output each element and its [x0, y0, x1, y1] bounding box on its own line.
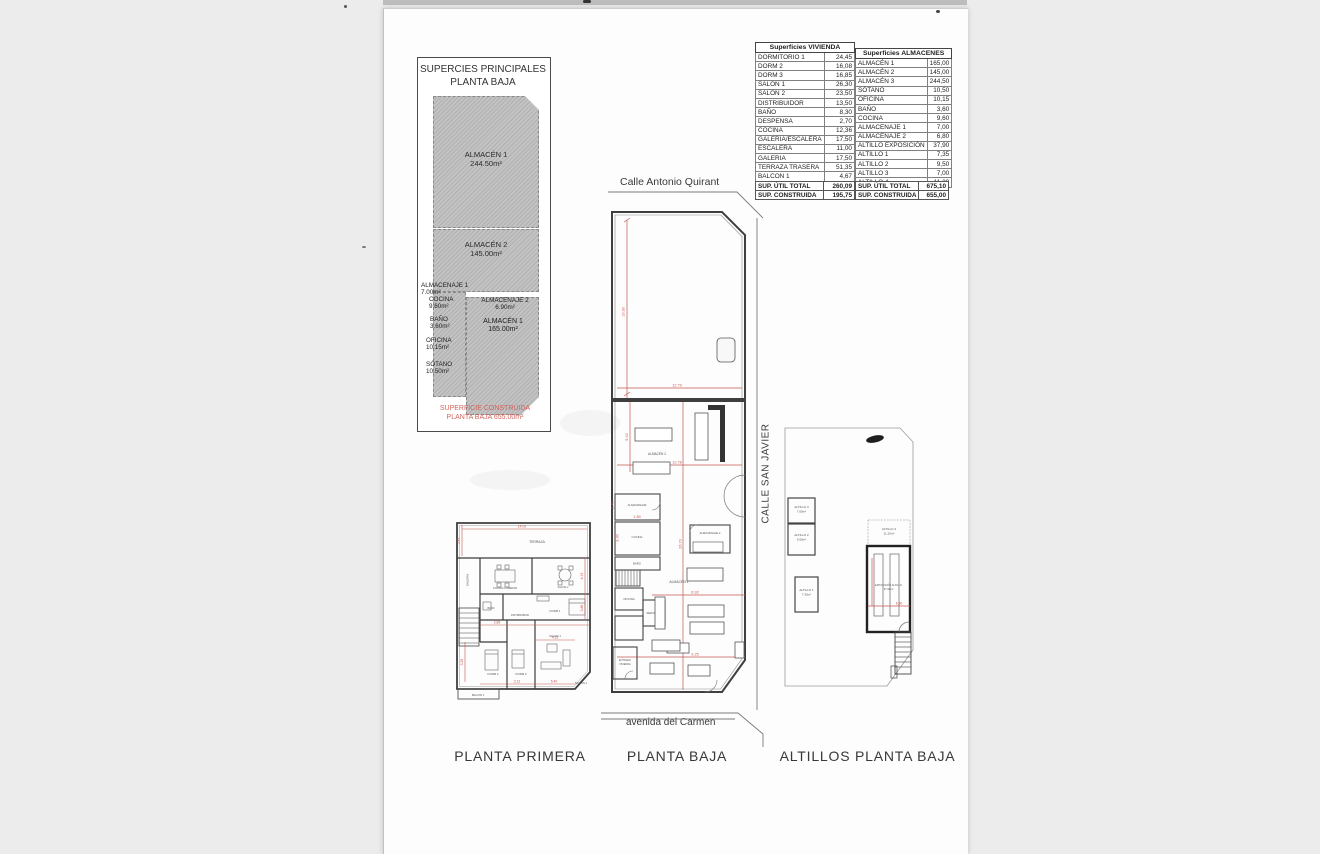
row-value: 37,90	[927, 141, 952, 150]
scan-artifact	[344, 5, 347, 8]
row-value: 3,60	[927, 104, 952, 113]
summary-footer: SUPERFICIE CONSTRUIDA PLANTA BAJA 655.00…	[428, 404, 542, 423]
row-value: 675,10	[919, 182, 949, 191]
area-label: SÓTANO 10.50m²	[426, 361, 452, 375]
dim-label: 4.19	[580, 573, 584, 580]
dim-label: 3.12	[514, 680, 521, 684]
stairs	[616, 570, 640, 586]
table-row: SALON 223,50	[756, 89, 855, 98]
row-value: 2,70	[824, 117, 854, 126]
room-label-almacen2: ALMACÉN 2	[648, 451, 666, 456]
area-value: 7.35m²	[802, 593, 811, 597]
row-value: 6,80	[927, 132, 952, 141]
floor-plan-altillos: 6.30 ALTILLO 3 7.00m² ALTILLO 2 9.50m² A…	[775, 418, 945, 718]
area-value: 9.50m²	[797, 538, 806, 542]
area-name: ALTILLO 4	[882, 527, 897, 531]
area-value: 244.50m²	[433, 159, 539, 168]
row-value: 16,85	[824, 71, 854, 80]
dim-label: 2.40	[611, 501, 615, 508]
furniture	[483, 565, 585, 670]
table-row: SALON 126,30	[756, 80, 855, 89]
table-row: BAÑO8,30	[756, 108, 855, 117]
row-label: BAÑO	[856, 104, 928, 113]
dim-label: 2.89	[494, 621, 501, 625]
row-label: ALTILLO 3	[856, 169, 928, 178]
table-row: ALTILLO EXPOSICIÓN37,90	[856, 141, 952, 150]
row-label: ALTILLO EXPOSICIÓN	[856, 141, 928, 150]
dimension-labels: 19.30 12.79 12.78 9.42 26.70 6.92 9.25 1…	[611, 307, 699, 656]
area-value: 10.50m²	[426, 368, 452, 375]
area-label: OFICINA 10.15m²	[426, 337, 452, 351]
area-name: ALMACÉN 1	[470, 318, 536, 326]
row-value: 9,50	[927, 160, 952, 169]
area-label: ALMACÉN 1 165.00m²	[470, 318, 536, 334]
area-label: COCINA 9.60m²	[429, 296, 454, 310]
altillo-labels: ALTILLO 3 7.00m² ALTILLO 2 9.50m² ALTILL…	[794, 505, 902, 597]
table-row: ALTILLO 37,00	[856, 169, 952, 178]
dim-label: 6.30	[896, 602, 903, 606]
scan-edge-strip	[383, 0, 967, 5]
building-outline	[612, 212, 745, 692]
area-name: BAÑO	[430, 316, 450, 323]
table-row: SUP. ÚTIL TOTAL675,10	[856, 182, 949, 191]
table-row: ALTILLO 17,35	[856, 150, 952, 159]
interior-wall	[720, 405, 725, 462]
table-row: SUP. CONSTRUIDA655,00	[856, 191, 949, 200]
room-label-dorm1: DORM 1	[550, 609, 561, 613]
interior-wall	[612, 398, 745, 402]
table-title: Superficies VIVIENDA	[756, 43, 855, 53]
table-row: GALERIA/ESCALERA17,50	[756, 135, 855, 144]
row-label: ALMACENAJE 2	[856, 132, 928, 141]
row-label: ALTILLO 1	[856, 150, 928, 159]
dim-label: 3.29	[460, 659, 464, 666]
row-value: 244,50	[927, 77, 952, 86]
summary-footer-line2: PLANTA BAJA 655.00m²	[428, 413, 542, 422]
scan-artifact	[583, 0, 591, 3]
scan-artifact	[865, 434, 884, 445]
room-label-terraza: TERRAZA	[529, 540, 546, 544]
area-label: ALMACÉN 2 145.00m²	[433, 240, 539, 259]
plan-title-altillos: ALTILLOS PLANTA BAJA	[770, 748, 965, 764]
area-label: ALMACENAJE 2 6.90m²	[477, 297, 533, 311]
row-label: SALON 1	[756, 80, 825, 89]
row-value: 10,15	[927, 95, 952, 104]
summary-footer-line1: SUPERFICIE CONSTRUIDA	[428, 404, 542, 413]
summary-title-line2: PLANTA BAJA	[419, 76, 547, 89]
shelving	[650, 568, 744, 676]
room-label-galeria: GALERIA	[466, 574, 470, 586]
table-row: SÓTANO10,50	[856, 86, 952, 95]
row-value: 16,08	[824, 62, 854, 71]
row-value: 26,30	[824, 80, 854, 89]
dim-label: 9.25	[691, 653, 698, 657]
dim-label: 12.78	[672, 461, 682, 465]
room-label-balcon1: BALCON 1	[472, 694, 485, 697]
row-value: 7,00	[927, 123, 952, 132]
dim-label: 5.40	[551, 680, 558, 684]
row-label: GALERIA	[756, 154, 825, 163]
row-label: DORM 2	[756, 62, 825, 71]
room-label-almacenaje2: ALMACENAJE 2	[700, 531, 721, 535]
area-value: 10.15m²	[426, 344, 452, 351]
dim-label: 12.79	[672, 384, 682, 388]
room-labels: TERRAZA GALERIA COCINA COMEDOR SALON 2 D…	[466, 540, 588, 697]
scanned-plan-sheet: SUPERCIES PRINCIPALES PLANTA BAJA ALMACÉ…	[0, 0, 1320, 854]
row-label: ALMACÉN 2	[856, 68, 928, 77]
room-label-dorm2: DORM 2	[488, 672, 499, 676]
room-label-almacen1: ALMACÉN 1	[669, 579, 688, 584]
floor-plan-planta-primera: 14.02 3.43 4.51 2.89 3.88 4.19 3.12 5.40…	[437, 512, 617, 712]
table-title: Superficies ALMACENES	[856, 49, 952, 59]
row-label: BAÑO	[756, 108, 825, 117]
area-value: 165.00m²	[470, 326, 536, 334]
scan-artifact	[936, 10, 940, 13]
room-label-distribuidor: DISTRIBUIDOR	[511, 614, 529, 617]
plan-title-planta-baja: PLANTA BAJA	[592, 748, 762, 764]
shelving	[693, 542, 723, 552]
summary-title-line1: SUPERCIES PRINCIPALES	[419, 63, 547, 76]
row-value: 7,35	[927, 150, 952, 159]
room-label-entrada: VIVIENDA	[619, 663, 631, 666]
room-label-bano: BAÑO	[633, 561, 642, 566]
row-value: 17,50	[824, 154, 854, 163]
area-name: ALTILLO 2	[794, 533, 809, 537]
row-value: 655,00	[919, 191, 949, 200]
fixture	[717, 338, 735, 362]
table-superficies-almacenes: Superficies ALMACENES ALMACÉN 1165,00ALM…	[855, 48, 952, 188]
row-value: 4,67	[824, 172, 854, 181]
area-name: ALMACÉN 1	[433, 150, 539, 159]
row-label: DESPENSA	[756, 117, 825, 126]
area-name: EXPOSICIÓN ALTILLO	[875, 582, 902, 587]
row-label: OFICINA	[856, 95, 928, 104]
row-value: 9,60	[927, 114, 952, 123]
area-name: COCINA	[429, 296, 454, 303]
area-label: BAÑO 3.60m²	[430, 316, 450, 330]
dim-label: 1.80	[633, 515, 640, 519]
table-row: ALMACÉN 1165,00	[856, 59, 952, 68]
area-label: ALMACÉN 1 244.50m²	[433, 150, 539, 169]
stairs	[459, 608, 479, 646]
room-label-salon1: SALON 1	[549, 634, 561, 638]
dim-label: 14.02	[518, 525, 527, 529]
room-label-balcon2: BALCON 2	[575, 682, 587, 685]
area-name: ALTILLO 3	[794, 505, 809, 509]
table-row: ALMACÉN 2145,00	[856, 68, 952, 77]
table-superficies-vivienda: Superficies VIVIENDA DORMITORIO 124,45DO…	[755, 42, 855, 191]
area-name: OFICINA	[426, 337, 452, 344]
area-label: ALMACENAJE 1 7.00m²	[421, 282, 468, 296]
row-value: 17,50	[824, 135, 854, 144]
dim-label: 3.43	[457, 538, 461, 545]
row-label: DISTRIBUIDOR	[756, 98, 825, 107]
room-label-oficina: OFICINA	[623, 597, 634, 601]
area-name: SÓTANO	[426, 361, 452, 368]
area-value: 145.00m²	[433, 249, 539, 258]
area-value: 3.60m²	[430, 323, 450, 330]
area-value: 37.90m²	[884, 587, 894, 591]
table-row: DISTRIBUIDOR13,50	[756, 98, 855, 107]
row-value: 165,00	[927, 59, 952, 68]
row-label: ALMACÉN 3	[856, 77, 928, 86]
row-label: TERRAZA TRASERA	[756, 163, 825, 172]
room-label-cocina: COCINA	[632, 535, 643, 539]
row-value: 195,75	[824, 191, 855, 200]
row-value: 23,50	[824, 89, 854, 98]
area-value: 11.20m²	[884, 532, 895, 536]
plan-title-planta-primera: PLANTA PRIMERA	[430, 748, 610, 764]
table-row: GALERIA17,50	[756, 154, 855, 163]
dim-label: 19.30	[622, 307, 626, 317]
hatched-area-almacen1-165	[466, 297, 539, 415]
floor-plan-planta-baja: 19.30 12.79 12.78 9.42 26.70 6.92 9.25 1…	[597, 172, 782, 747]
table-row: OFICINA10,15	[856, 95, 952, 104]
area-name: ALMACÉN 2	[433, 240, 539, 249]
table-almacenes-totals: SUP. ÚTIL TOTAL675,10SUP. CONSTRUIDA655,…	[855, 181, 949, 200]
table-row: ALMACÉN 3244,50	[856, 77, 952, 86]
table-row: DORM 316,85	[756, 71, 855, 80]
table-row: ESCALERA11,00	[756, 144, 855, 153]
scan-artifact	[362, 246, 366, 248]
area-name: ALTILLO 1	[799, 588, 814, 592]
row-value: 8,30	[824, 108, 854, 117]
row-value: 260,09	[824, 182, 855, 191]
area-value: 9.60m²	[429, 303, 454, 310]
table-row: COCINA9,60	[856, 114, 952, 123]
row-value: 10,50	[927, 86, 952, 95]
row-value: 11,00	[824, 144, 854, 153]
summary-box-title: SUPERCIES PRINCIPALES PLANTA BAJA	[419, 63, 547, 89]
dim-label: 9.42	[625, 433, 629, 440]
table-row: ALTILLO 29,50	[856, 160, 952, 169]
area-value: 7.00m²	[797, 510, 806, 514]
table-row: DORMITORIO 124,45	[756, 53, 855, 62]
room-label-almacenaje: ALMACENAJE	[628, 503, 647, 507]
room-label-bano: BAÑO	[487, 607, 494, 610]
dim-label: 26.70	[679, 539, 683, 549]
stairs	[891, 632, 911, 678]
table-row: DORM 216,08	[756, 62, 855, 71]
row-value: 145,00	[927, 68, 952, 77]
row-value: 12,36	[824, 126, 854, 135]
row-label: DORM 3	[756, 71, 825, 80]
row-label: SUP. CONSTRUIDA	[856, 191, 919, 200]
row-label: ALMACENAJE 1	[856, 123, 928, 132]
row-label: SALON 2	[756, 89, 825, 98]
room-label-cocina-comedor: COCINA COMEDOR	[493, 586, 517, 590]
dimension-lines	[617, 218, 745, 690]
door-arc	[899, 622, 909, 632]
row-value: 7,00	[927, 169, 952, 178]
room-label-salon2: SALON 2	[558, 585, 570, 589]
area-value: 6.90m²	[477, 304, 533, 311]
room-label-dorm3: DORM 3	[516, 672, 527, 676]
table-row: TERRAZA TRASERA51,35	[756, 163, 855, 172]
row-label: GALERIA/ESCALERA	[756, 135, 825, 144]
row-label: SÓTANO	[856, 86, 928, 95]
row-label: SUP. ÚTIL TOTAL	[856, 182, 919, 191]
row-label: ALMACÉN 1	[856, 59, 928, 68]
dim-label: 6.92	[691, 591, 698, 595]
row-label: COCINA	[756, 126, 825, 135]
table-row: ALMACENAJE 17,00	[856, 123, 952, 132]
room-label-entrada: ENTRADA	[619, 659, 631, 662]
row-value: 51,35	[824, 163, 854, 172]
table-row: DESPENSA2,70	[756, 117, 855, 126]
row-label: DORMITORIO 1	[756, 53, 825, 62]
table-row: ALMACENAJE 26,80	[856, 132, 952, 141]
dim-label: 3.88	[580, 605, 584, 612]
footprint-outline	[785, 428, 913, 686]
row-value: 13,50	[824, 98, 854, 107]
row-label: ALTILLO 2	[856, 160, 928, 169]
area-name: ALMACENAJE 1	[421, 282, 468, 289]
table-row: BAÑO3,60	[856, 104, 952, 113]
row-value: 24,45	[824, 53, 854, 62]
scan-smudge	[470, 470, 550, 490]
area-name: ALMACENAJE 2	[477, 297, 533, 304]
row-label: ESCALERA	[756, 144, 825, 153]
row-label: COCINA	[856, 114, 928, 123]
table-row: COCINA12,36	[756, 126, 855, 135]
